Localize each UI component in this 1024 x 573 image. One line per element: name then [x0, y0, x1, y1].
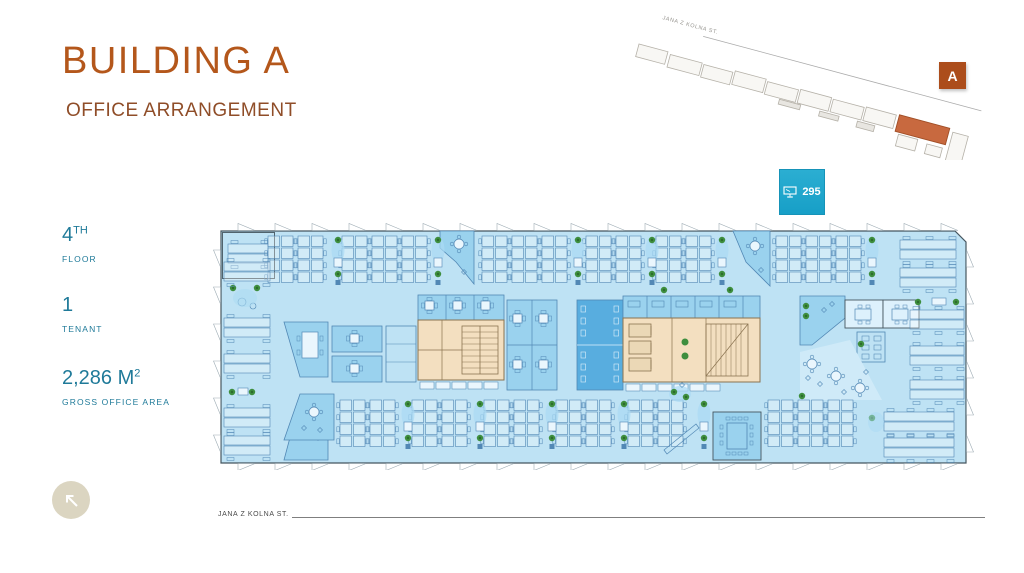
floor-plan-svg	[212, 222, 975, 470]
slide-canvas: BUILDING A OFFICE ARRANGEMENT 4TH FLOOR …	[0, 0, 1024, 573]
stat-tenant-label: TENANT	[62, 324, 103, 334]
stat-area: 2,286 M2 GROSS OFFICE AREA	[62, 368, 170, 407]
stat-area-value: 2,286 M2	[62, 368, 170, 388]
stat-floor-label: FLOOR	[62, 254, 97, 264]
building-a-marker-label: A	[947, 68, 957, 84]
floor-plan	[212, 222, 975, 470]
street-label-bottom: JANA Z KOLNA ST.	[218, 511, 289, 518]
page-title: BUILDING A	[62, 40, 290, 83]
stat-floor-value: 4TH	[62, 225, 97, 245]
street-line-bottom	[292, 517, 985, 518]
stat-floor: 4TH FLOOR	[62, 225, 97, 264]
site-plan: JANA Z KOLNA ST. A	[625, 0, 1024, 160]
workstation-icon	[783, 186, 798, 199]
stat-tenant: 1 TENANT	[62, 295, 103, 334]
back-button[interactable]	[52, 481, 90, 519]
site-buildings	[630, 44, 969, 160]
workstation-count-badge: 295	[779, 169, 825, 215]
stat-tenant-value: 1	[62, 295, 103, 315]
building-a-marker: A	[939, 62, 966, 89]
street-label-top: JANA Z KOLNA ST.	[662, 15, 719, 36]
stat-area-label: GROSS OFFICE AREA	[62, 397, 170, 407]
arrow-up-left-icon	[60, 489, 82, 511]
page-subtitle: OFFICE ARRANGEMENT	[66, 100, 297, 122]
workstation-count: 295	[802, 186, 820, 198]
